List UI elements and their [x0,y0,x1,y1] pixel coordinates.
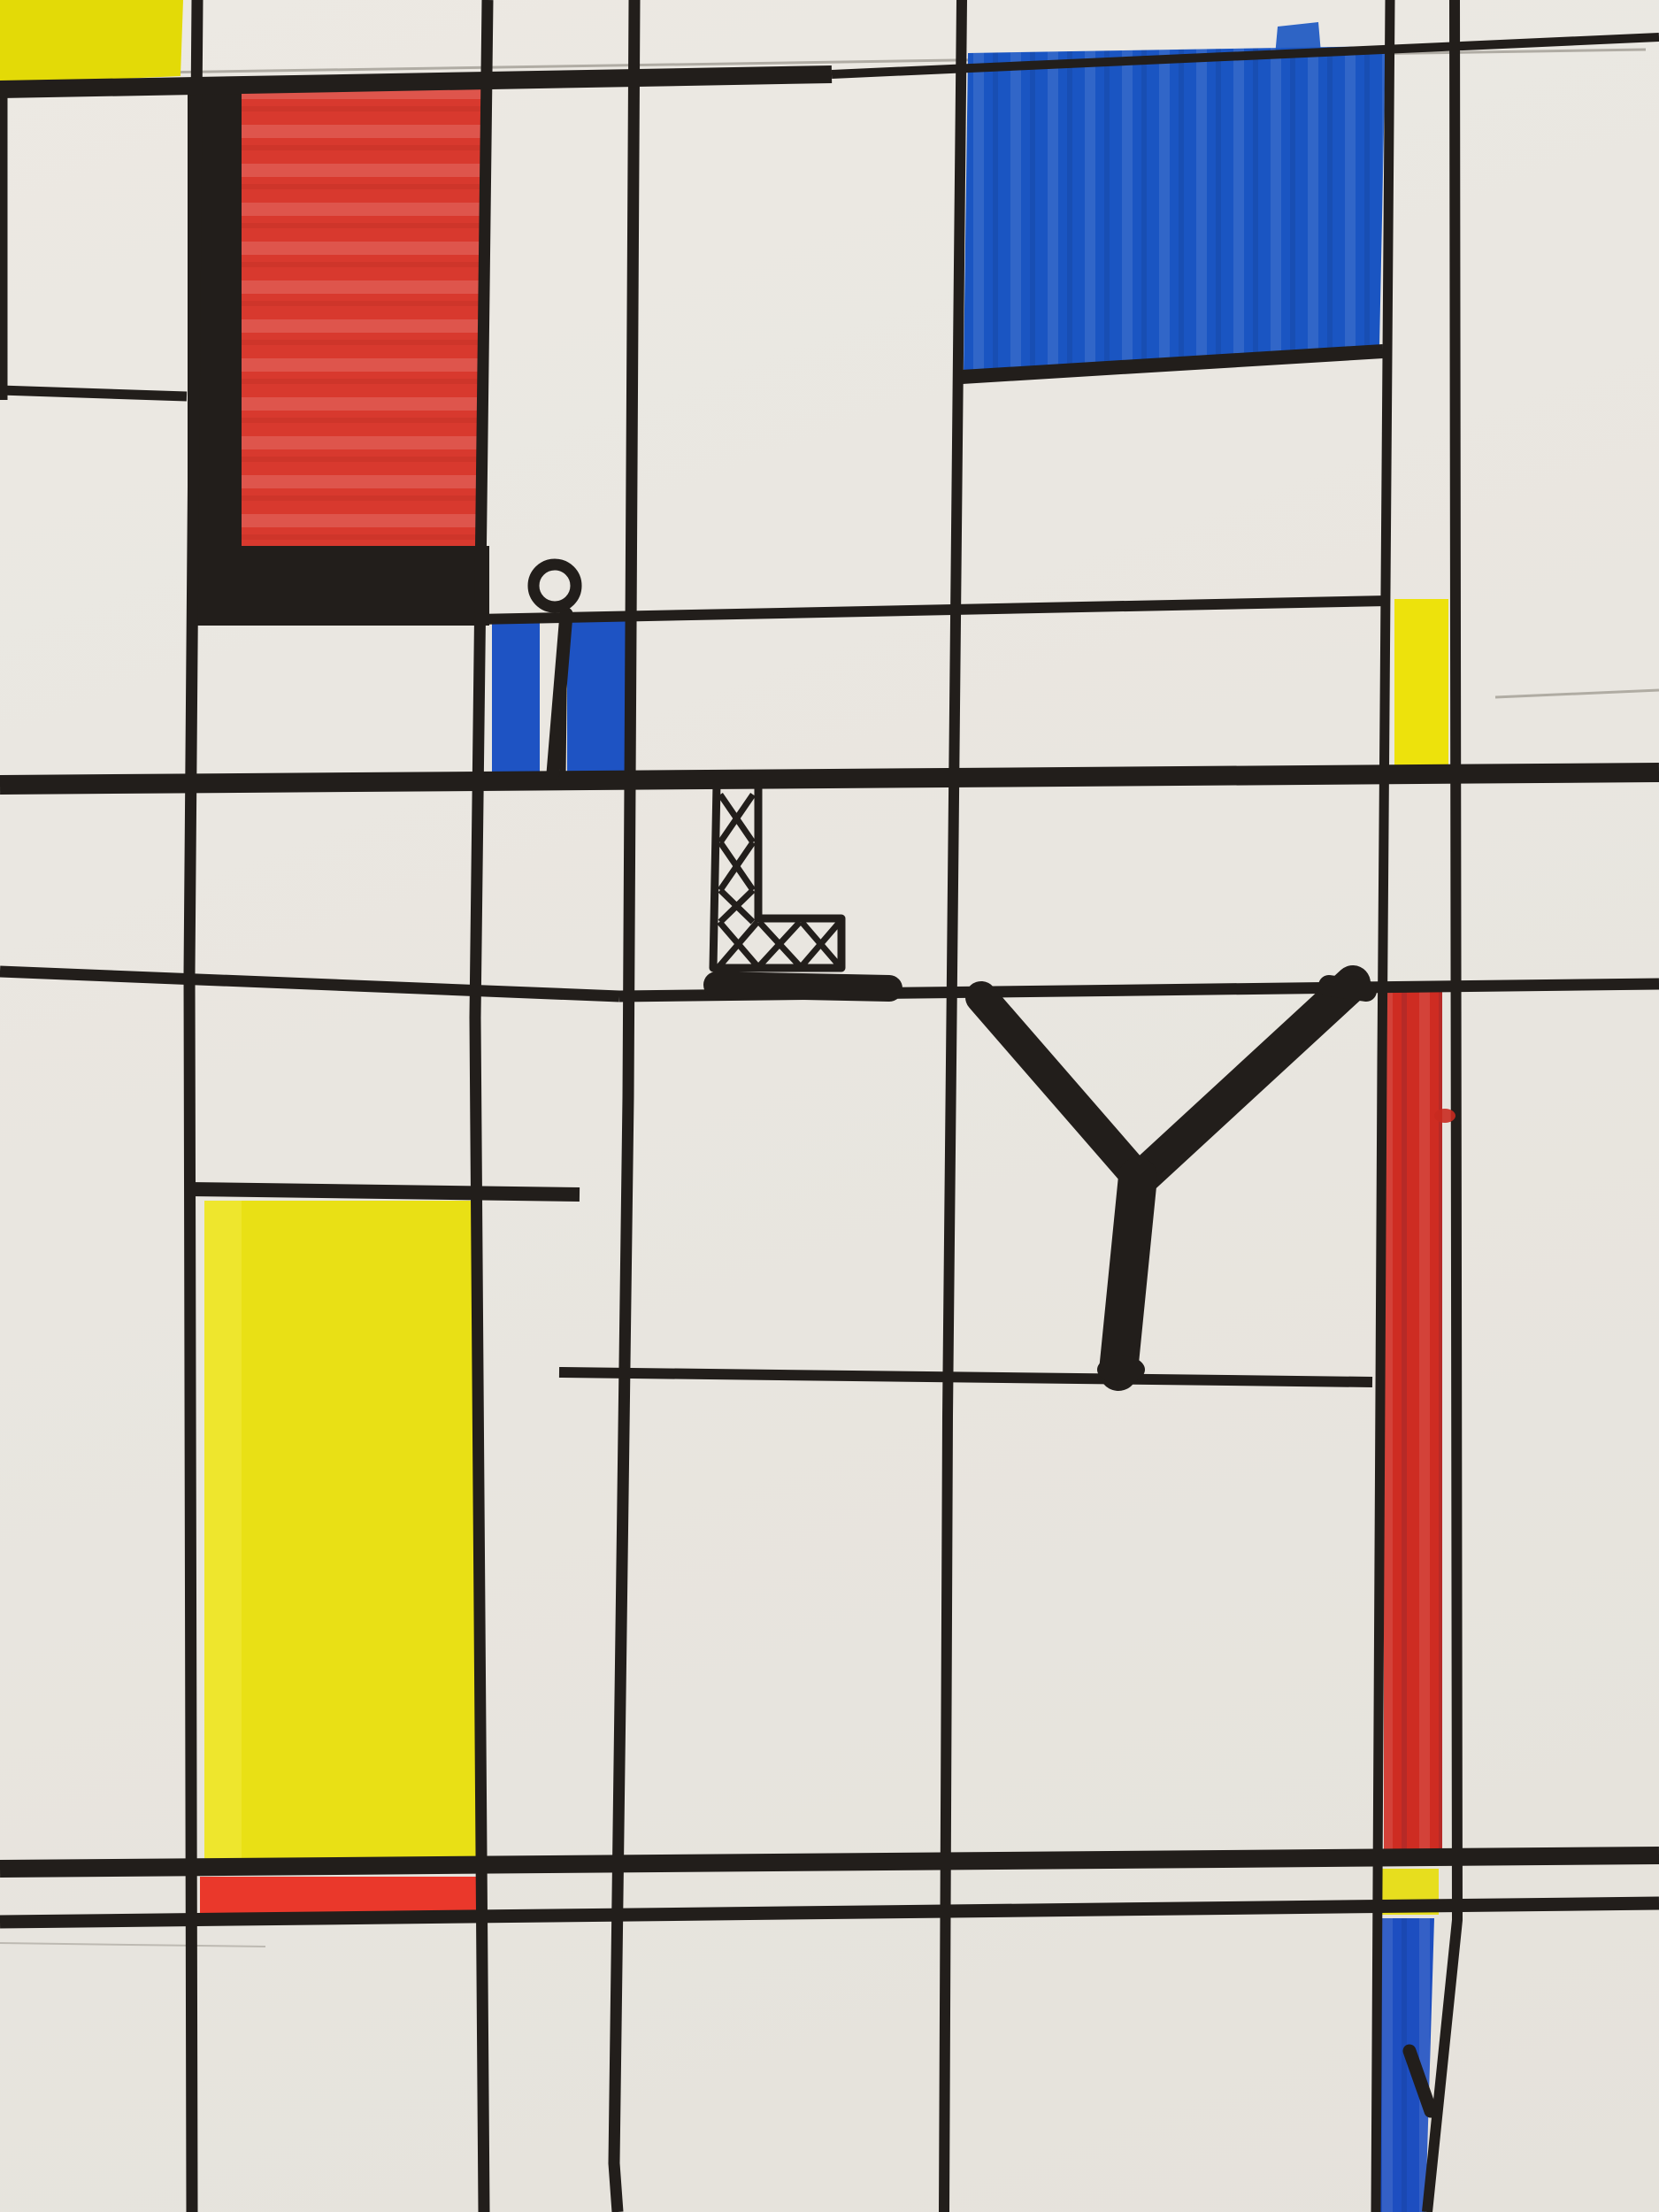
grid-v3 [614,0,634,2212]
grid-h5-yellow-top [189,1189,580,1194]
figure-blue-left [492,623,540,776]
layer-figures [534,565,1455,2111]
yellow-block-top-left [0,0,183,84]
figure-blue-right-outline-right [630,622,632,776]
letter-y-right-arm-attach [1329,986,1366,991]
pencil-guide-bottom-left [0,1943,265,1947]
blue-strip-bottom-right-streaks [1377,1918,1434,2212]
letter-y-foot [1097,1356,1145,1384]
grid-h3 [476,601,1387,619]
red-block-streaks [235,83,483,550]
grid-h4-left [0,972,619,996]
letter-y-right-arm [1140,983,1353,1179]
letter-y-stem [1118,1177,1138,1371]
drawing-canvas [0,0,1659,2212]
grid-h4-thick-under-l [717,985,889,988]
grid-h6 [559,1372,1372,1382]
red-smudge [1434,1109,1455,1123]
grid-v4 [944,0,962,2212]
yellow-block-highlight [204,1201,242,1863]
grid-h-mid [0,772,1659,785]
photo-of-mondrian-style-drawing [0,0,1659,2212]
figure-blue-right [567,618,627,777]
grid-v1 [189,0,197,2212]
blue-block-top-streaks [964,46,1386,373]
red-strip-right-streaks [1384,991,1442,1863]
letter-i-dot [534,565,576,607]
yellow-block-bottom-left [204,1201,482,1863]
letter-y-left-arm [981,997,1140,1179]
yellow-strip-right [1394,599,1448,777]
pencil-guide-right [1495,690,1659,697]
grid-h2-left-stub [0,390,187,396]
